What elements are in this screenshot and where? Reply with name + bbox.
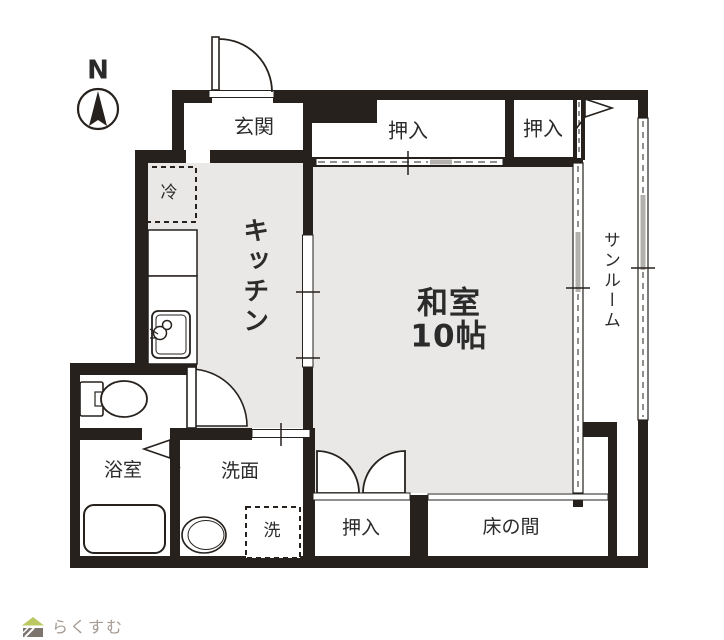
toilet-icon bbox=[80, 381, 147, 417]
room-label-bathroom: 浴室 bbox=[104, 461, 142, 481]
washitsu-name: 和室 bbox=[410, 287, 487, 320]
basin-icon bbox=[182, 517, 226, 553]
room-label-sunroom: サンルーム bbox=[600, 231, 618, 331]
room-label-tokonoma: 床の間 bbox=[482, 518, 539, 538]
entrance-door-icon bbox=[209, 37, 274, 98]
wall bbox=[303, 90, 313, 235]
fixture-label-refrigerator: 冷 bbox=[161, 185, 178, 203]
room-label-washitsu: 和室 10帖 bbox=[410, 287, 487, 352]
wall bbox=[638, 91, 648, 118]
wall bbox=[135, 150, 148, 365]
genkan-step-opening bbox=[186, 150, 210, 163]
bathtub-icon bbox=[84, 505, 165, 553]
wall bbox=[410, 495, 428, 568]
wall bbox=[135, 150, 313, 163]
wall bbox=[70, 363, 80, 568]
room-label-closet-top-left: 押入 bbox=[388, 121, 428, 142]
wall bbox=[303, 367, 313, 428]
washitsu-size: 10帖 bbox=[410, 320, 487, 353]
bath-door-opening bbox=[142, 428, 170, 440]
wall bbox=[505, 90, 514, 167]
floor-plan: N 玄関 押入 押入 和室 10帖 キッチン サンルーム 冷 浴室 洗面 洗 押… bbox=[0, 0, 724, 640]
room-label-kitchen: キッチン bbox=[239, 217, 266, 337]
compass-icon bbox=[78, 89, 118, 129]
room-label-closet-top-right: 押入 bbox=[523, 119, 563, 140]
wall bbox=[305, 90, 377, 123]
wall bbox=[70, 363, 197, 375]
closet-top-left-floor bbox=[312, 123, 377, 157]
room-label-closet-bottom: 押入 bbox=[342, 519, 380, 539]
room-label-genkan: 玄関 bbox=[234, 117, 274, 138]
compass-north-label: N bbox=[87, 57, 109, 84]
floor-fills bbox=[148, 163, 573, 493]
wall bbox=[638, 420, 648, 568]
wall bbox=[303, 556, 648, 568]
room-label-washroom: 洗面 bbox=[221, 462, 259, 482]
logo-text: らくすむ bbox=[52, 620, 124, 637]
house-logo-icon bbox=[20, 617, 46, 637]
fixture-label-washing-machine: 洗 bbox=[264, 523, 281, 541]
wall bbox=[608, 422, 617, 568]
window-icon bbox=[631, 118, 655, 420]
tokonoma-edge bbox=[428, 494, 608, 500]
